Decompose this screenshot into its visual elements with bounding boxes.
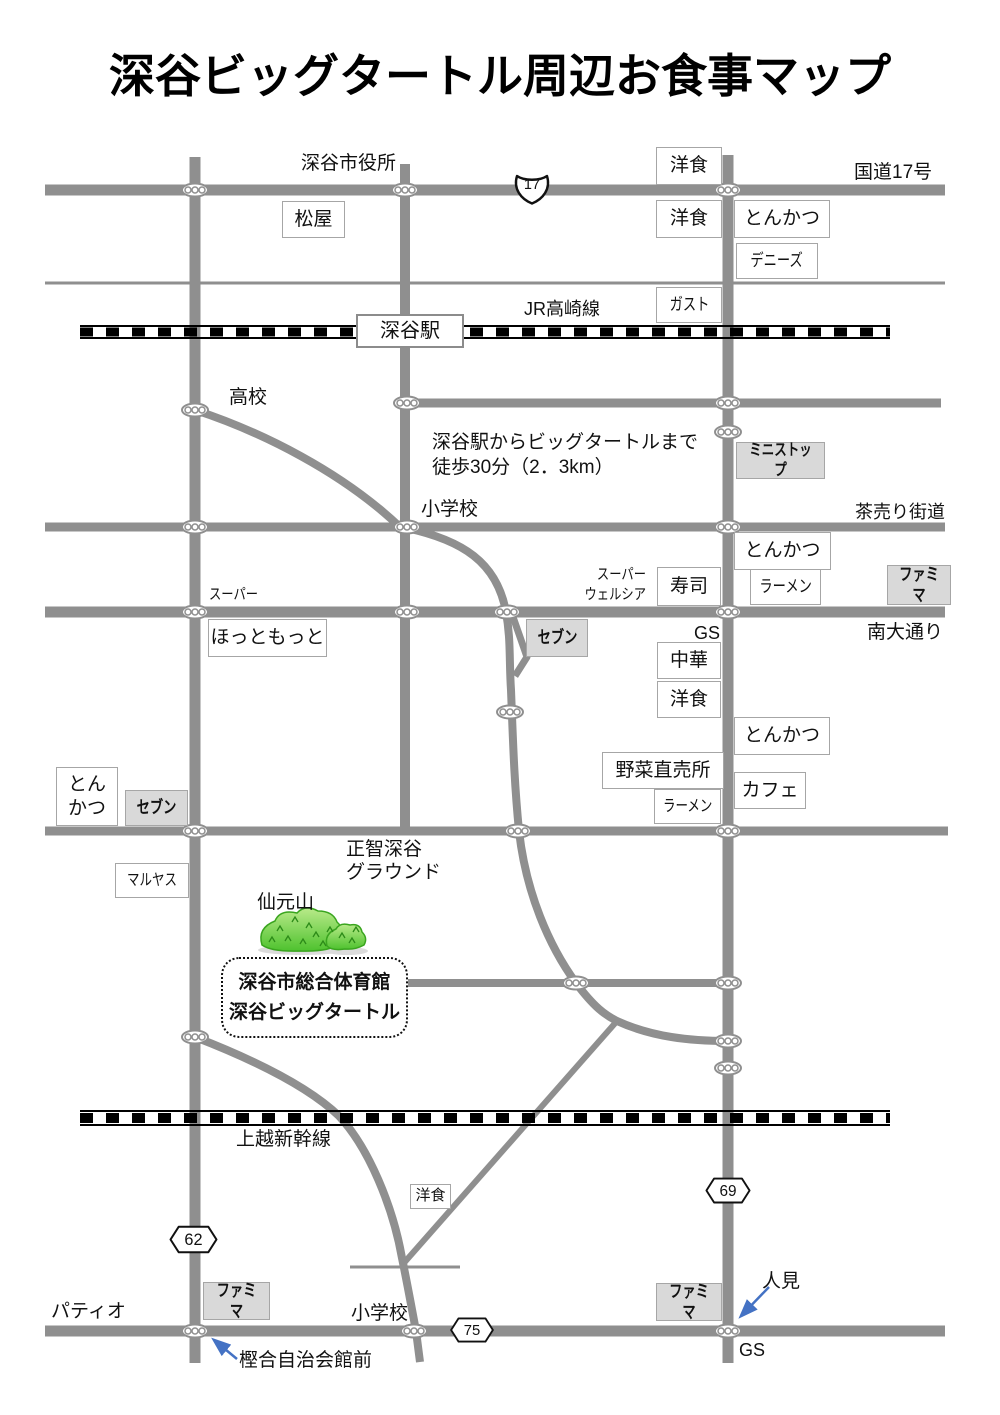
seven-west-box: セブン xyxy=(125,790,188,826)
svg-text:75: 75 xyxy=(464,1323,481,1339)
chuka-box: 中華 xyxy=(657,642,721,679)
highschool-label: 高校 xyxy=(229,387,267,409)
ministop-box: ミニストップ xyxy=(736,442,825,479)
famima-patio-box: ファミマ xyxy=(203,1282,270,1320)
svg-text:62: 62 xyxy=(184,1231,202,1249)
prefectural-route-hexagon-icon: 62 xyxy=(169,1225,218,1254)
ramen-south-box: ラーメン xyxy=(654,789,721,824)
yoshoku-route17-north-box: 洋食 xyxy=(656,147,722,185)
city-hall-label: 深谷市役所 xyxy=(301,153,396,175)
hitomi-label: 人見 xyxy=(762,1271,800,1293)
big-turtle-box: 深谷市総合体育館深谷ビッグタートル xyxy=(221,957,408,1038)
famima-hitomi-box: ファミマ xyxy=(656,1283,722,1321)
joetsu-shinkansen-label: 上越新幹線 xyxy=(236,1129,331,1151)
super-welcia-label: スーパーウェルシア xyxy=(560,565,646,604)
gs-minamiodori-label: GS xyxy=(694,623,720,644)
map-page: 深谷ビッグタートル周辺お食事マップ 洋食洋食とんかつデニーズガスト松屋深谷駅ミニ… xyxy=(0,0,1000,1415)
dennys-box: デニーズ xyxy=(736,243,818,279)
route-62-badge: 62 xyxy=(169,1225,218,1254)
seichi-ground-label: 正智深谷グラウンド xyxy=(346,839,441,885)
sushi-box: 寿司 xyxy=(657,567,721,606)
yoshoku-shinkansen-box: 洋食 xyxy=(410,1184,451,1209)
fukaya-station-box: 深谷駅 xyxy=(356,314,464,348)
patio-label: パティオ xyxy=(51,1301,126,1323)
national-route-shield-icon: 17 xyxy=(511,170,553,207)
labels-layer: 洋食洋食とんかつデニーズガスト松屋深谷駅ミニストップとんかつ寿司ラーメンファミマ… xyxy=(0,0,1000,1415)
route-69-badge: 69 xyxy=(705,1177,751,1204)
walk-note: 深谷駅からビッグタートルまで徒歩30分（2．3km） xyxy=(432,430,698,480)
prefectural-route-hexagon-icon: 75 xyxy=(449,1317,495,1343)
tonkatsu-west-box: とんかつ xyxy=(56,767,118,826)
prefectural-route-hexagon-icon: 69 xyxy=(705,1177,751,1204)
seven-minamiodori-box: セブン xyxy=(526,619,588,657)
jr-takasaki-label: JR高崎線 xyxy=(524,299,600,320)
maruyasu-box: マルヤス xyxy=(115,863,189,898)
cafe-box: カフェ xyxy=(734,772,806,809)
matsuya-box: 松屋 xyxy=(282,201,345,238)
shogakko-south-label: 小学校 xyxy=(351,1303,408,1325)
tonkatsu-east-box: とんかつ xyxy=(734,717,830,755)
tonkatsu-route17-box: とんかつ xyxy=(734,200,830,238)
route17-name-label: 国道17号 xyxy=(854,162,932,184)
hottomotto-box: ほっともっと xyxy=(208,619,327,657)
kashiai-jichikaikan-label: 樫合自治会館前 xyxy=(239,1350,372,1372)
famima-chaurikaido-box: ファミマ xyxy=(887,565,951,605)
yoshoku-minamiodori-box: 洋食 xyxy=(657,681,721,718)
super-west-label: スーパー xyxy=(209,586,269,604)
svg-text:17: 17 xyxy=(524,177,540,193)
gusto-box: ガスト xyxy=(656,287,722,323)
route-75-badge: 75 xyxy=(449,1317,495,1343)
ramen-chaurikaido-box: ラーメン xyxy=(750,569,821,605)
yoshoku-route17-south-box: 洋食 xyxy=(656,200,722,238)
svg-text:69: 69 xyxy=(719,1183,736,1200)
route-17-badge: 17 xyxy=(511,170,553,207)
chaurikaido-label: 茶売り街道 xyxy=(855,502,945,523)
gs-hitomi-label: GS xyxy=(739,1340,765,1361)
sengenyama-label: 仙元山 xyxy=(257,892,314,914)
shogakko-north-label: 小学校 xyxy=(421,499,478,521)
tonkatsu-chaurikaido-box: とんかつ xyxy=(734,532,831,570)
minamiodori-label: 南大通り xyxy=(867,622,943,644)
yasai-chokubaijo-box: 野菜直売所 xyxy=(602,752,724,789)
